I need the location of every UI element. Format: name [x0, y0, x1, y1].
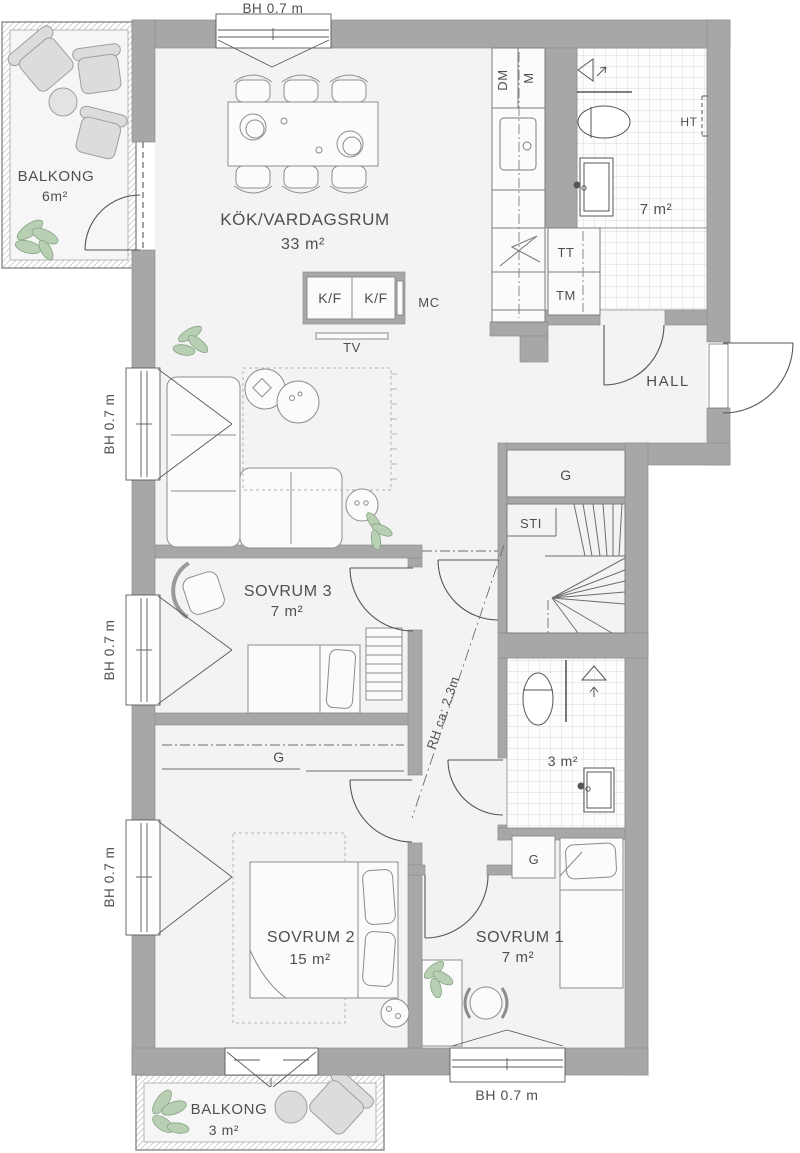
fridge-freezer-label: K/F — [364, 290, 388, 306]
dresser — [366, 628, 402, 700]
bathroom-sink — [584, 768, 614, 812]
side-table — [381, 999, 409, 1027]
entrance-door — [709, 343, 793, 413]
toilet — [578, 106, 630, 138]
toilet — [523, 673, 553, 725]
bedroom2-name: SOVRUM 2 — [267, 929, 355, 946]
wardrobe-label: G — [560, 467, 572, 483]
balcony-top — [2, 22, 136, 268]
tumble-dryer-label: TT — [557, 245, 574, 260]
bathroom-sink — [580, 158, 613, 216]
dining-set — [228, 75, 378, 193]
bedroom3-name: SOVRUM 3 — [244, 583, 332, 600]
washing-machine-label: TM — [556, 288, 576, 303]
towel-dryer-label: HT — [680, 115, 697, 129]
window-height-label: BH 0.7 m — [102, 619, 117, 680]
tv-label: TV — [343, 340, 361, 355]
balcony-table — [49, 88, 77, 116]
wardrobe-label: G — [273, 749, 285, 765]
dishwasher-label: DM — [495, 69, 510, 90]
window-height-label: BH 0.7 m — [475, 1087, 538, 1103]
hall-name: HALL — [646, 373, 690, 390]
pillow — [326, 649, 356, 709]
floor-plan-drawing: BH 0.7 m BALKONG 6m² KÖK/VARDAGSRUM 33 m… — [0, 0, 800, 1153]
balcony-bottom-name: BALKONG — [191, 1101, 268, 1118]
bathroom-large-area: 7 m² — [640, 201, 672, 218]
balcony-table — [275, 1091, 307, 1123]
wardrobe-label: G — [529, 852, 540, 867]
micro-cabinet-label: MC — [418, 295, 439, 310]
floor-plan: BH 0.7 m BALKONG 6m² KÖK/VARDAGSRUM 33 m… — [0, 0, 800, 1153]
stairs-label: STI — [520, 516, 542, 531]
kitchen-living-area: 33 m² — [281, 236, 325, 253]
fridge-freezer-label: K/F — [318, 290, 342, 306]
balcony-top-name: BALKONG — [18, 168, 95, 185]
pillow — [362, 869, 396, 925]
balcony-top-area: 6m² — [42, 188, 68, 204]
pillow — [565, 843, 617, 880]
kitchen-living-name: KÖK/VARDAGSRUM — [220, 210, 390, 229]
micro-label: M — [521, 72, 536, 83]
window-height-label: BH 0.7 m — [102, 846, 117, 907]
bedroom3-area: 7 m² — [271, 603, 303, 620]
balcony-bottom-area: 3 m² — [209, 1122, 239, 1138]
pillow — [362, 931, 396, 987]
bedroom1-name: SOVRUM 1 — [476, 929, 564, 946]
bedroom2-area: 15 m² — [289, 951, 330, 968]
tv-bench — [316, 333, 388, 339]
bedroom1-area: 7 m² — [502, 949, 534, 966]
bathroom-small-area: 3 m² — [548, 753, 578, 769]
window-height-label: BH 0.7 m — [242, 1, 303, 16]
dining-table — [228, 102, 378, 166]
window-height-label: BH 0.7 m — [102, 393, 117, 454]
